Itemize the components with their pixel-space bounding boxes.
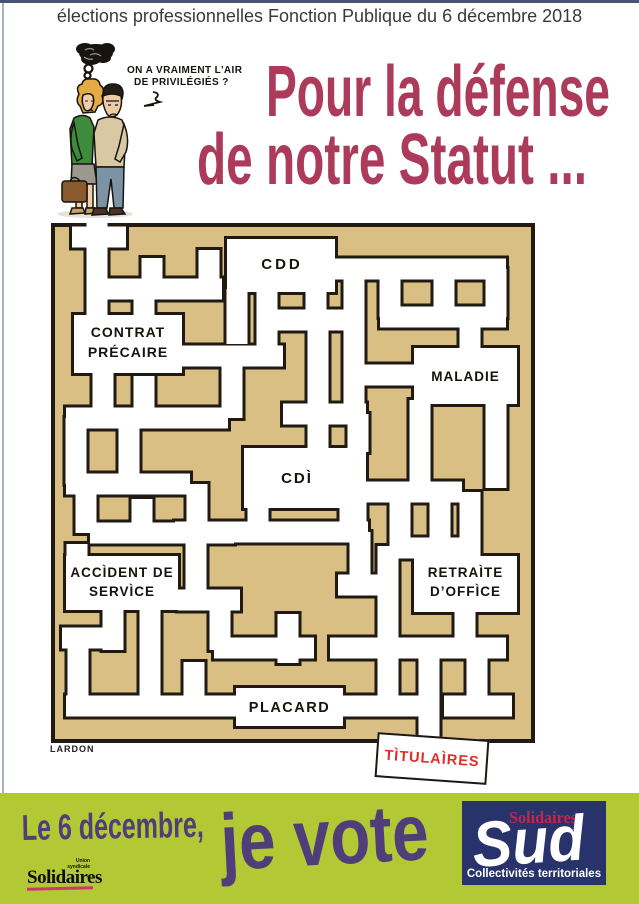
svg-text:je vote: je vote [217, 793, 431, 887]
svg-text:Collectivités territoriales: Collectivités territoriales [467, 868, 601, 880]
svg-text:ON A VRAIMENT L'AIR: ON A VRAIMENT L'AIR [127, 65, 243, 76]
svg-text:Le 6 décembre,: Le 6 décembre, [21, 804, 204, 848]
svg-text:DE PRIVILÉGIÉS ?: DE PRIVILÉGIÉS ? [134, 75, 229, 88]
